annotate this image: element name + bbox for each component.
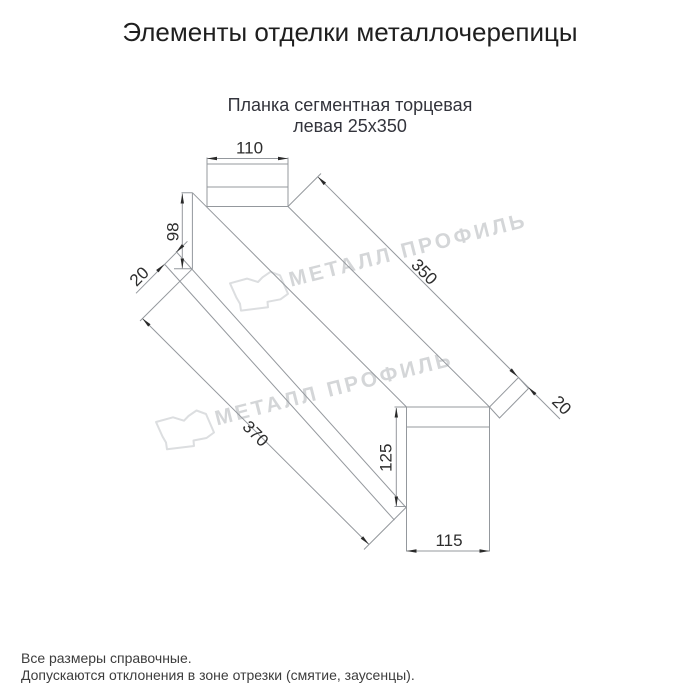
svg-text:98: 98 bbox=[163, 222, 182, 241]
svg-text:110: 110 bbox=[236, 139, 263, 158]
svg-text:125: 125 bbox=[377, 444, 396, 472]
svg-text:115: 115 bbox=[435, 531, 462, 550]
